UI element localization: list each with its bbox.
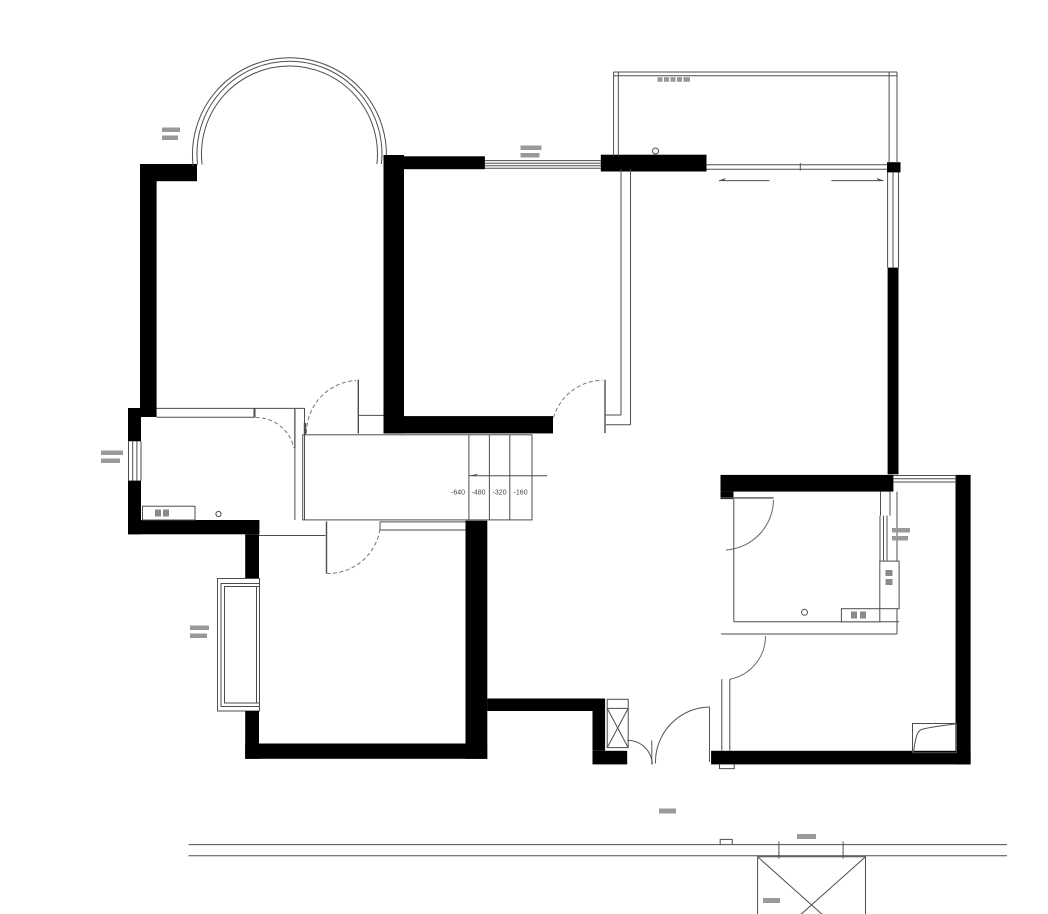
svg-text:-160: -160 [514, 490, 528, 497]
svg-text:-320: -320 [493, 490, 507, 497]
svg-text:-640: -640 [451, 490, 465, 497]
svg-text:-480: -480 [471, 490, 485, 497]
